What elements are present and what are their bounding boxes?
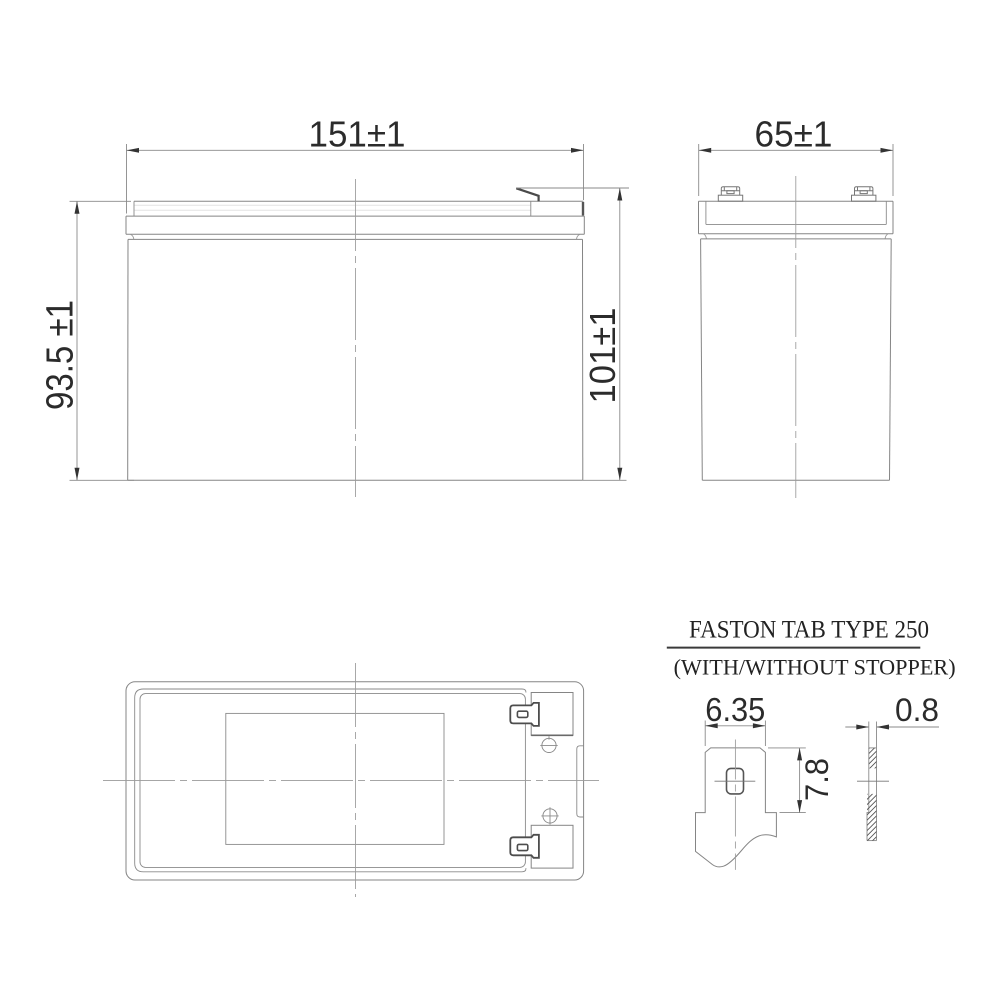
svg-text:0.8: 0.8 [895, 692, 939, 728]
svg-text:(WITH/WITHOUT STOPPER): (WITH/WITHOUT STOPPER) [674, 655, 956, 680]
svg-text:65±1: 65±1 [755, 113, 833, 154]
svg-text:101±1: 101±1 [582, 308, 623, 404]
svg-text:151±1: 151±1 [309, 113, 406, 154]
svg-text:93.5 ±1: 93.5 ±1 [40, 300, 82, 410]
svg-text:FASTON TAB TYPE 250: FASTON TAB TYPE 250 [689, 617, 929, 644]
svg-text:7.8: 7.8 [799, 758, 835, 801]
svg-text:6.35: 6.35 [705, 691, 765, 728]
